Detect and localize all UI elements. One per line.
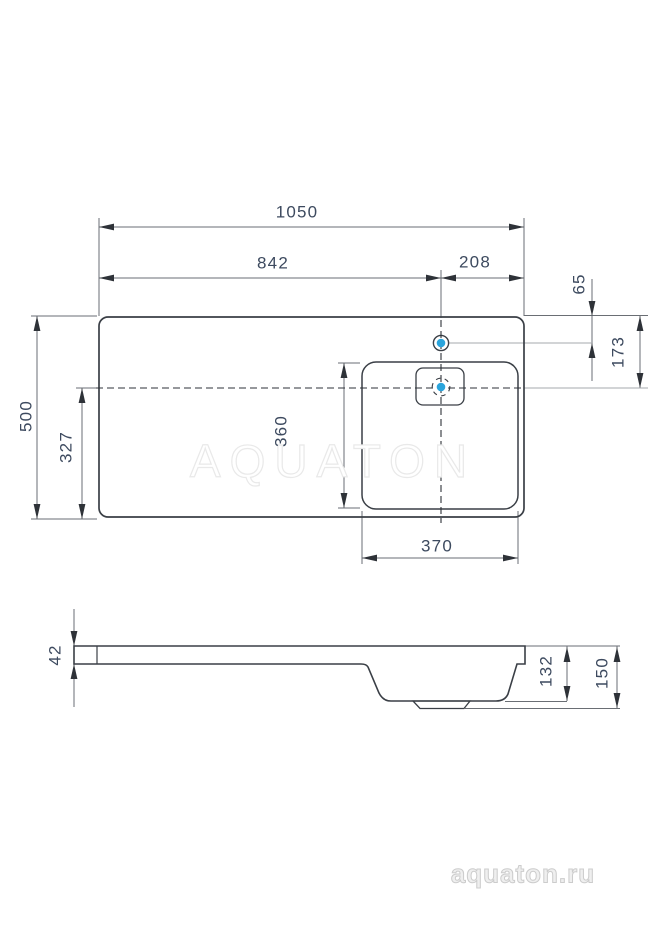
dim-label-total-height: 150 [594,657,611,689]
arrowheads-top-view [34,224,644,562]
centerlines [96,320,524,523]
dim-label-left-to-faucet: 842 [257,255,289,272]
dim-label-top-to-faucet: 65 [571,273,588,294]
dim-label-bowl-depth: 360 [273,415,290,447]
top-view [31,218,648,564]
dim-label-basin-height: 132 [538,655,555,687]
dim-label-countertop-thickness: 42 [47,644,64,665]
technical-drawing-page: AQUATON aquaton.ru 1050 842 208 65 173 5… [0,0,656,925]
countertop-side-profile [74,646,525,701]
aquaton-watermark: AQUATON [190,434,476,488]
drain-marker [437,383,446,392]
dim-label-overall-width: 1050 [276,204,319,221]
dim-label-overall-depth: 500 [18,400,35,432]
dim-label-drain-to-front: 327 [58,431,75,463]
dim-label-top-to-drain: 173 [610,336,627,368]
aquaton-ru-logo: aquaton.ru [451,859,595,890]
dim-label-bowl-width: 370 [421,538,453,555]
dim-label-faucet-to-right: 208 [459,254,491,271]
faucet-hole-marker [437,339,446,348]
drain-boss [413,701,470,709]
side-profile-object [74,646,525,709]
dimension-lines-top [31,218,648,564]
